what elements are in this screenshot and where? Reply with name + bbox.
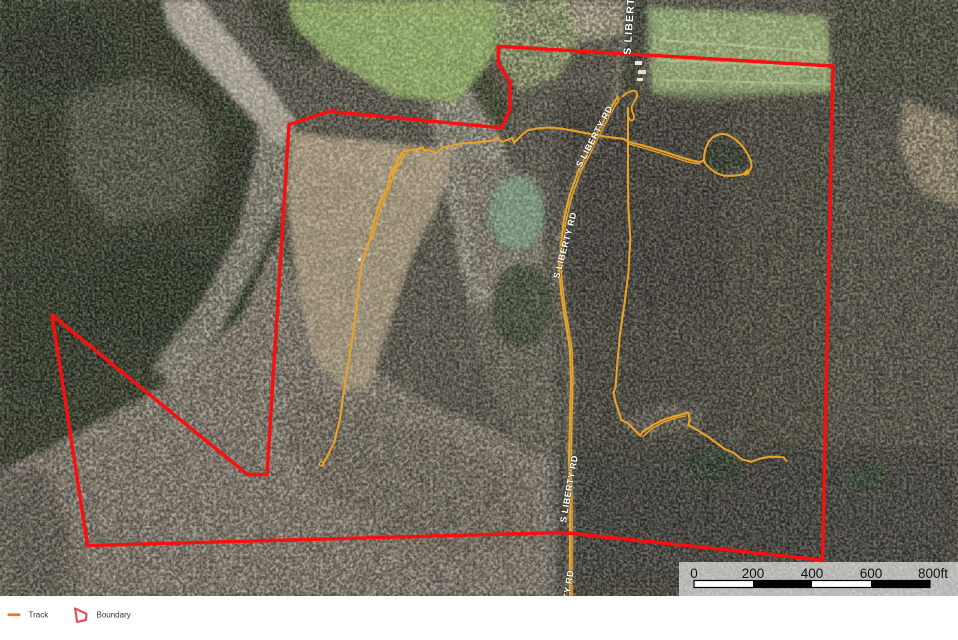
svg-text:600: 600 [860, 566, 883, 581]
svg-text:800ft: 800ft [918, 566, 948, 581]
svg-text:Track: Track [29, 611, 50, 620]
svg-text:Boundary: Boundary [97, 611, 131, 620]
svg-text:200: 200 [742, 566, 765, 581]
svg-text:0: 0 [690, 566, 698, 581]
svg-text:400: 400 [801, 566, 824, 581]
